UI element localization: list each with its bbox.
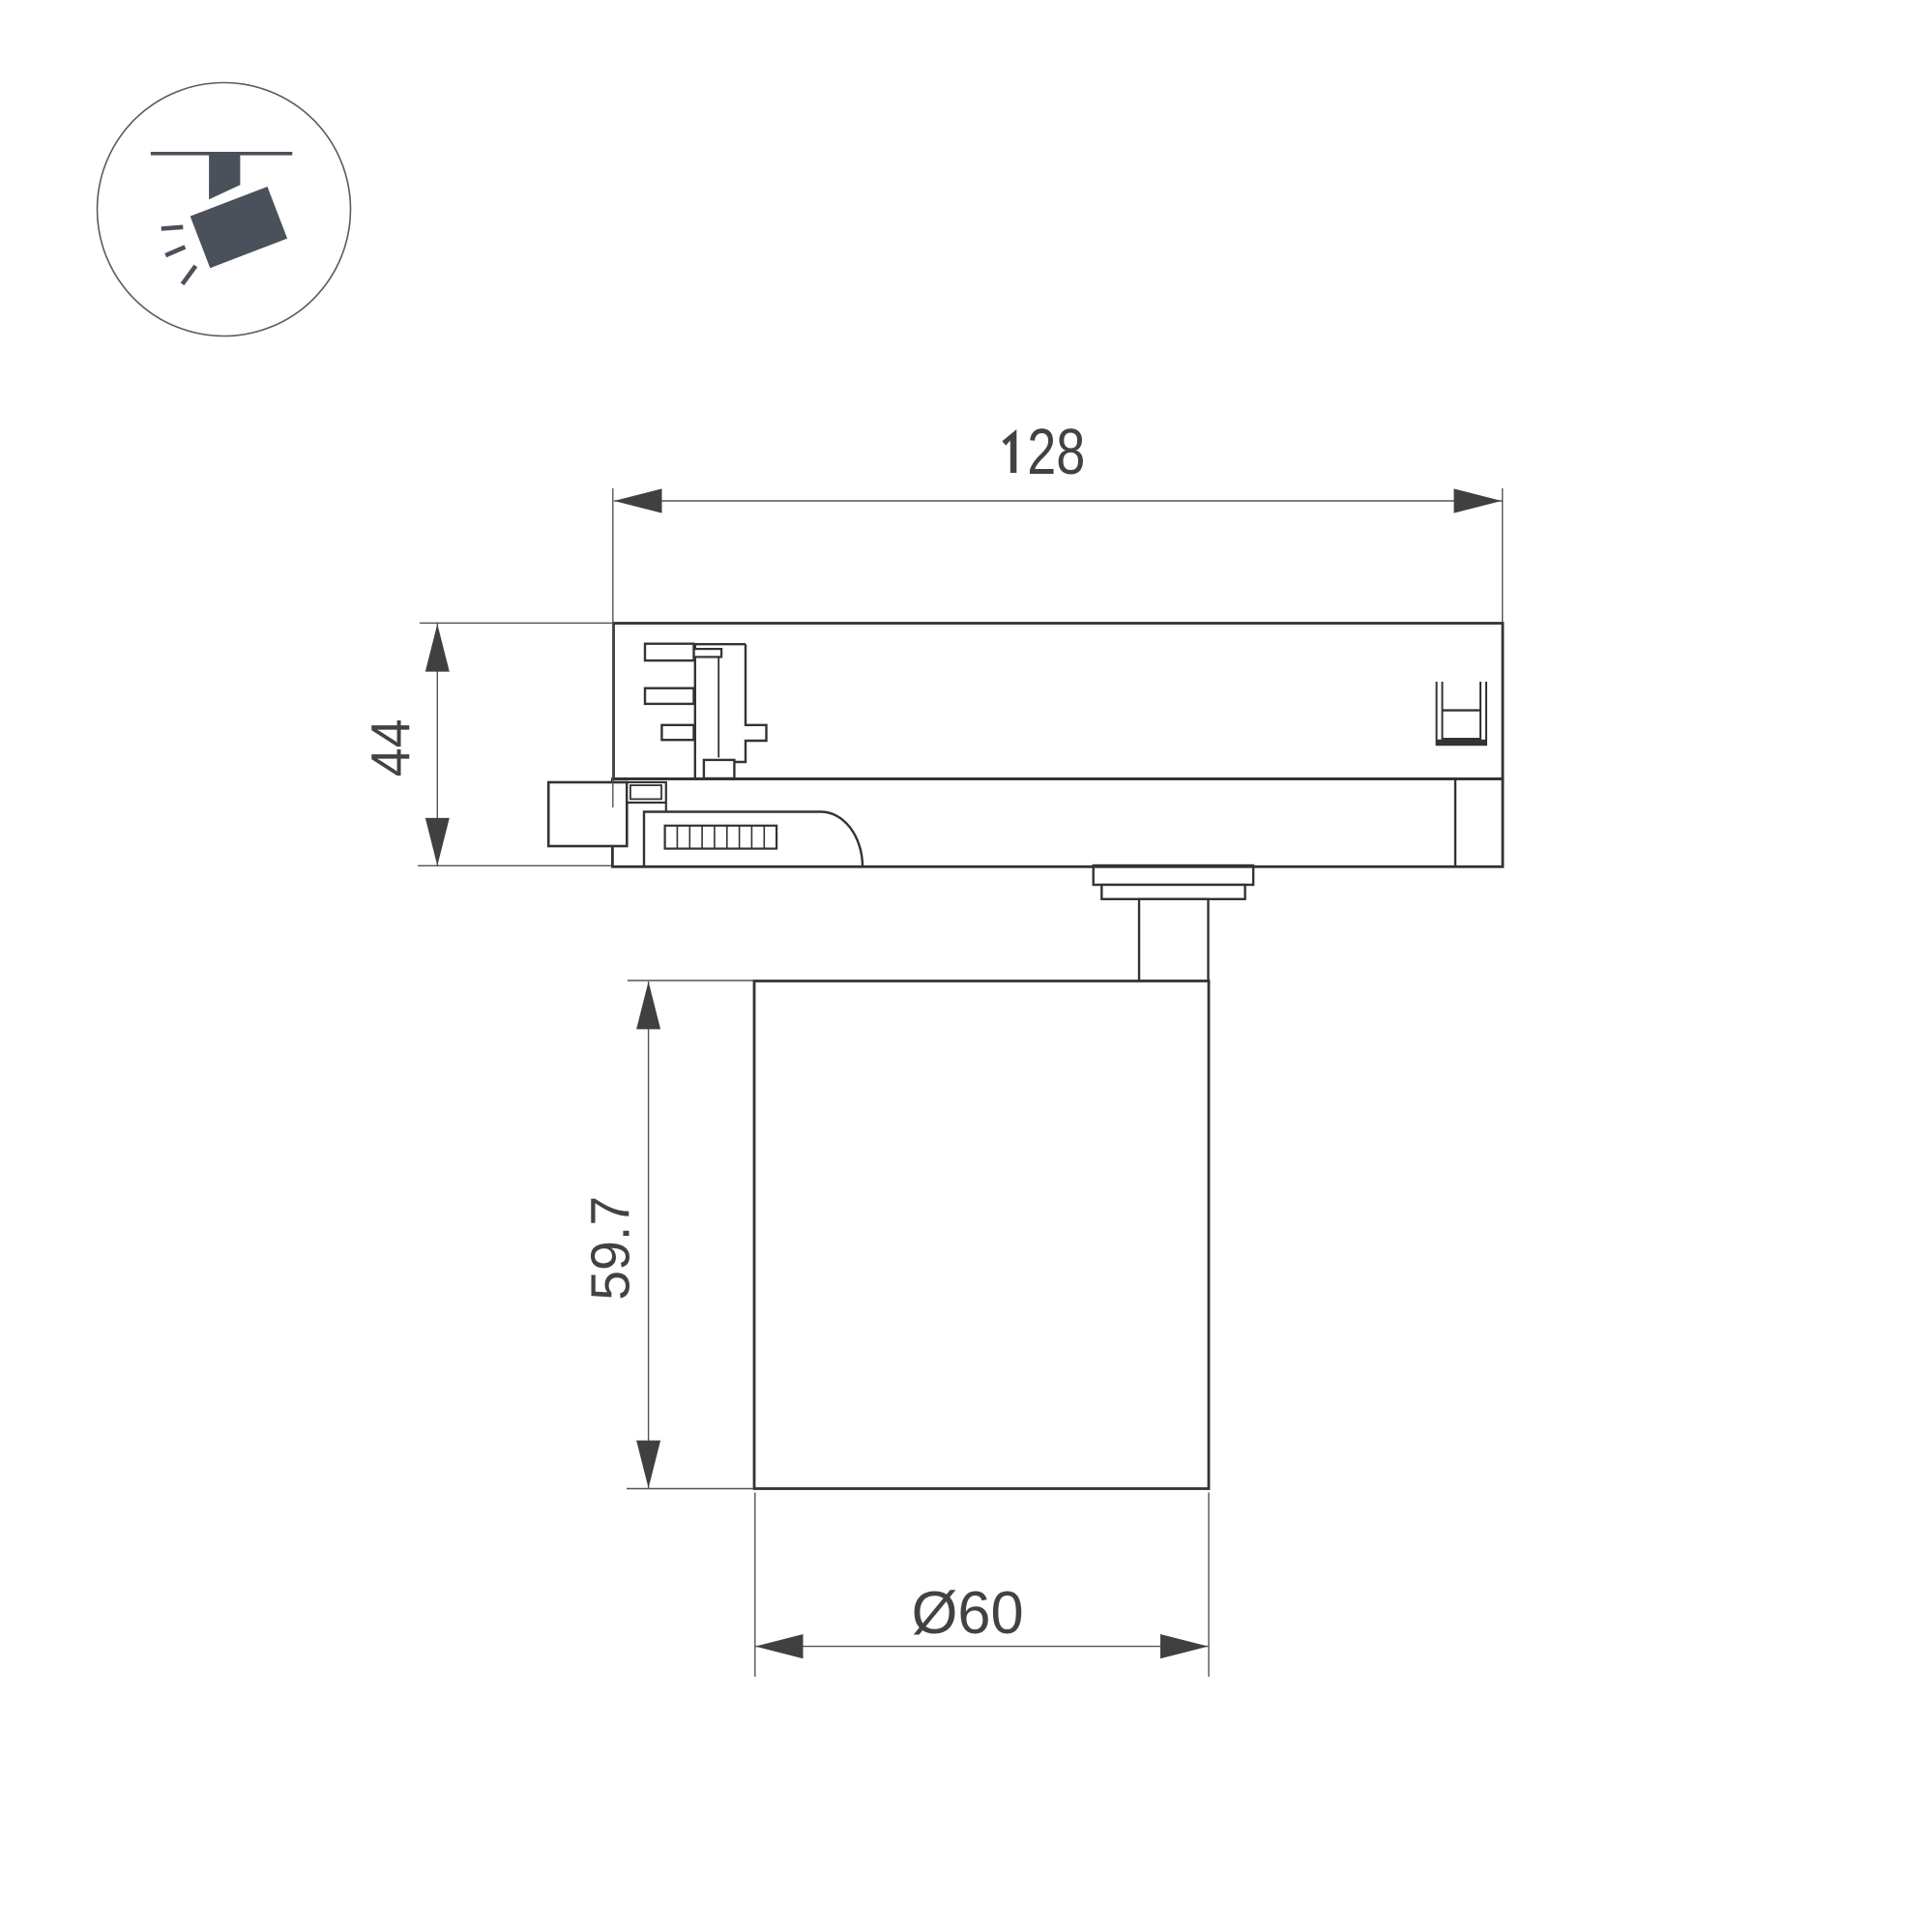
svg-text:28: 28 — [1027, 416, 1085, 488]
svg-text:59.7: 59.7 — [580, 1196, 642, 1301]
svg-text:44: 44 — [361, 718, 423, 776]
svg-text:Ø60: Ø60 — [912, 1580, 1024, 1647]
